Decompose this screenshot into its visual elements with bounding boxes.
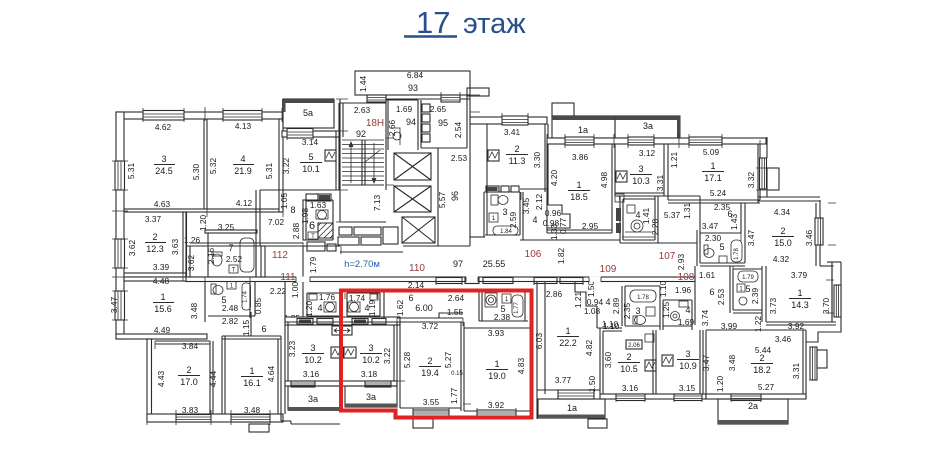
svg-text:3.41: 3.41 bbox=[504, 127, 521, 137]
svg-text:2.89: 2.89 bbox=[611, 298, 621, 315]
svg-text:3.22: 3.22 bbox=[382, 348, 392, 365]
svg-text:3.62: 3.62 bbox=[127, 240, 137, 257]
svg-text:1a: 1a bbox=[578, 125, 588, 135]
svg-text:25.55: 25.55 bbox=[483, 259, 506, 269]
svg-text:3.39: 3.39 bbox=[153, 262, 170, 272]
svg-text:1.20: 1.20 bbox=[715, 376, 725, 393]
svg-text:4.64: 4.64 bbox=[266, 366, 276, 383]
svg-text:2: 2 bbox=[186, 365, 191, 375]
svg-text:4.34: 4.34 bbox=[774, 207, 791, 217]
svg-text:17: 17 bbox=[416, 5, 450, 40]
svg-text:6: 6 bbox=[727, 209, 732, 219]
svg-text:1: 1 bbox=[565, 326, 570, 336]
svg-text:2.22: 2.22 bbox=[270, 286, 287, 296]
svg-text:1.76: 1.76 bbox=[319, 292, 336, 302]
svg-text:3.16: 3.16 bbox=[622, 383, 639, 393]
svg-text:2.53: 2.53 bbox=[716, 289, 726, 306]
svg-text:1: 1 bbox=[576, 180, 581, 190]
svg-text:3.25: 3.25 bbox=[218, 222, 235, 232]
svg-text:6: 6 bbox=[709, 287, 714, 297]
svg-text:5.27: 5.27 bbox=[758, 382, 775, 392]
svg-text:3.47: 3.47 bbox=[746, 230, 756, 247]
svg-text:3.31: 3.31 bbox=[655, 175, 665, 192]
svg-text:4.12: 4.12 bbox=[236, 198, 253, 208]
svg-text:19.4: 19.4 bbox=[421, 368, 439, 378]
svg-text:6: 6 bbox=[261, 324, 266, 334]
svg-text:3: 3 bbox=[635, 306, 640, 316]
svg-text:4.63: 4.63 bbox=[154, 199, 171, 209]
svg-text:3a: 3a bbox=[308, 394, 318, 404]
svg-text:4.43: 4.43 bbox=[156, 371, 166, 388]
svg-text:21.9: 21.9 bbox=[234, 166, 252, 176]
svg-text:3.15: 3.15 bbox=[679, 383, 696, 393]
svg-text:24.5: 24.5 bbox=[155, 166, 173, 176]
svg-text:3.32: 3.32 bbox=[746, 172, 756, 189]
svg-text:2.82: 2.82 bbox=[222, 316, 239, 326]
svg-text:6.84: 6.84 bbox=[407, 70, 424, 80]
svg-text:2.48: 2.48 bbox=[222, 303, 239, 313]
svg-text:5.37: 5.37 bbox=[664, 210, 681, 220]
svg-text:3.63: 3.63 bbox=[170, 239, 180, 256]
svg-text:3a: 3a bbox=[366, 392, 376, 402]
svg-text:3.18: 3.18 bbox=[361, 369, 378, 379]
svg-text:1.10: 1.10 bbox=[658, 281, 668, 298]
svg-text:4: 4 bbox=[532, 215, 537, 225]
svg-text:2: 2 bbox=[514, 144, 519, 154]
svg-text:5.27: 5.27 bbox=[443, 352, 453, 369]
svg-text:1.44: 1.44 bbox=[358, 76, 368, 93]
svg-text:2.86: 2.86 bbox=[546, 289, 563, 299]
svg-text:111: 111 bbox=[280, 272, 296, 283]
svg-text:этаж: этаж bbox=[463, 8, 526, 40]
svg-text:108: 108 bbox=[678, 272, 695, 283]
svg-text:1.74: 1.74 bbox=[349, 293, 366, 303]
svg-text:3: 3 bbox=[502, 207, 507, 217]
svg-text:4.62: 4.62 bbox=[155, 122, 172, 132]
svg-text:1.78: 1.78 bbox=[637, 295, 649, 301]
svg-text:3.92: 3.92 bbox=[788, 321, 805, 331]
svg-text:96: 96 bbox=[450, 191, 460, 201]
svg-text:2.59: 2.59 bbox=[508, 212, 518, 229]
svg-text:1.74: 1.74 bbox=[243, 291, 249, 303]
svg-text:4.83: 4.83 bbox=[516, 358, 526, 375]
svg-text:3.12: 3.12 bbox=[639, 148, 656, 158]
svg-text:5.09: 5.09 bbox=[703, 147, 720, 157]
svg-text:3.60: 3.60 bbox=[603, 352, 613, 369]
svg-text:2.35: 2.35 bbox=[622, 303, 632, 320]
svg-text:2: 2 bbox=[427, 356, 432, 366]
svg-text:2.95: 2.95 bbox=[582, 221, 599, 231]
svg-text:3.77: 3.77 bbox=[555, 375, 572, 385]
svg-text:18.5: 18.5 bbox=[570, 192, 588, 202]
svg-text:5: 5 bbox=[719, 242, 724, 252]
svg-text:3.30: 3.30 bbox=[532, 152, 542, 169]
svg-text:7.13: 7.13 bbox=[372, 195, 382, 212]
svg-text:1.20: 1.20 bbox=[198, 215, 208, 232]
svg-text:22.2: 22.2 bbox=[559, 338, 577, 348]
svg-text:3.70: 3.70 bbox=[821, 298, 831, 315]
svg-text:6: 6 bbox=[408, 293, 413, 303]
svg-text:T: T bbox=[311, 234, 315, 240]
svg-text:110: 110 bbox=[409, 263, 425, 274]
svg-text:2.54: 2.54 bbox=[453, 122, 463, 139]
svg-text:3.84: 3.84 bbox=[182, 341, 199, 351]
svg-text:2.63: 2.63 bbox=[354, 105, 371, 115]
svg-text:11.3: 11.3 bbox=[509, 156, 526, 166]
svg-text:17.0: 17.0 bbox=[180, 377, 198, 387]
svg-text:h=2.70м: h=2.70м bbox=[344, 259, 380, 270]
svg-text:10.5: 10.5 bbox=[620, 364, 638, 374]
svg-text:1.10: 1.10 bbox=[602, 319, 619, 329]
svg-text:112: 112 bbox=[272, 250, 288, 261]
svg-text:2: 2 bbox=[780, 226, 785, 236]
svg-text:0.77: 0.77 bbox=[558, 218, 568, 235]
svg-text:17.1: 17.1 bbox=[704, 173, 722, 183]
svg-text:5.24: 5.24 bbox=[710, 188, 727, 198]
svg-text:1a: 1a bbox=[567, 403, 577, 413]
svg-text:4.13: 4.13 bbox=[235, 121, 252, 131]
svg-text:4: 4 bbox=[240, 154, 245, 164]
svg-text:4.20: 4.20 bbox=[549, 170, 559, 187]
svg-text:1.08: 1.08 bbox=[584, 306, 601, 316]
svg-text:3: 3 bbox=[638, 164, 643, 174]
svg-text:2.12: 2.12 bbox=[534, 194, 544, 211]
svg-text:1.15: 1.15 bbox=[241, 320, 251, 337]
svg-text:3: 3 bbox=[368, 343, 373, 353]
svg-text:3.37: 3.37 bbox=[145, 214, 162, 224]
svg-text:1.61: 1.61 bbox=[699, 270, 716, 280]
svg-text:3.48: 3.48 bbox=[244, 405, 261, 415]
svg-text:1.62: 1.62 bbox=[395, 300, 405, 317]
svg-text:2.38: 2.38 bbox=[494, 312, 511, 322]
svg-text:6.00: 6.00 bbox=[415, 303, 433, 313]
svg-text:1.77: 1.77 bbox=[449, 388, 459, 405]
svg-text:92: 92 bbox=[356, 129, 366, 139]
svg-text:2: 2 bbox=[759, 353, 764, 363]
svg-text:5.31: 5.31 bbox=[264, 163, 274, 180]
svg-text:3.16: 3.16 bbox=[303, 369, 320, 379]
svg-text:2.65: 2.65 bbox=[430, 104, 447, 114]
svg-text:5a: 5a bbox=[303, 108, 313, 118]
svg-text:2.93: 2.93 bbox=[676, 254, 686, 271]
svg-text:3.62: 3.62 bbox=[186, 255, 196, 272]
svg-text:1.77: 1.77 bbox=[514, 302, 520, 314]
svg-text:3.31: 3.31 bbox=[791, 363, 801, 380]
svg-text:1.84: 1.84 bbox=[500, 229, 512, 235]
svg-text:4.98: 4.98 bbox=[599, 172, 609, 189]
svg-text:1.21: 1.21 bbox=[669, 152, 679, 169]
svg-text:3.23: 3.23 bbox=[287, 341, 297, 358]
svg-text:4: 4 bbox=[317, 303, 322, 313]
svg-text:12.3: 12.3 bbox=[146, 244, 164, 254]
svg-text:3: 3 bbox=[310, 343, 315, 353]
svg-text:3.86: 3.86 bbox=[572, 152, 589, 162]
svg-text:8: 8 bbox=[290, 205, 295, 215]
svg-text:5.57: 5.57 bbox=[437, 192, 447, 209]
svg-text:0.96: 0.96 bbox=[545, 208, 562, 218]
svg-text:3.46: 3.46 bbox=[775, 334, 792, 344]
svg-text:7: 7 bbox=[228, 243, 233, 253]
svg-text:5: 5 bbox=[308, 152, 313, 162]
svg-text:1.78: 1.78 bbox=[734, 248, 740, 260]
svg-text:3.48: 3.48 bbox=[727, 355, 737, 372]
svg-text:7.02: 7.02 bbox=[268, 217, 285, 227]
svg-text:4.32: 4.32 bbox=[773, 254, 790, 264]
svg-text:107: 107 bbox=[659, 251, 676, 262]
svg-text:1: 1 bbox=[160, 292, 165, 302]
svg-text:15.6: 15.6 bbox=[154, 304, 172, 314]
svg-text:10.3: 10.3 bbox=[632, 176, 650, 186]
svg-text:16.1: 16.1 bbox=[243, 378, 261, 388]
svg-text:1: 1 bbox=[797, 288, 802, 298]
svg-text:18Н: 18Н bbox=[366, 118, 384, 129]
svg-text:1: 1 bbox=[494, 359, 499, 369]
svg-text:2.64: 2.64 bbox=[448, 293, 465, 303]
svg-text:1.69: 1.69 bbox=[678, 317, 695, 327]
svg-text:109: 109 bbox=[600, 264, 617, 275]
svg-text:19.0: 19.0 bbox=[488, 371, 506, 381]
svg-text:5.28: 5.28 bbox=[402, 352, 412, 369]
svg-text:2.28: 2.28 bbox=[650, 219, 660, 236]
svg-text:3.55: 3.55 bbox=[423, 397, 440, 407]
svg-text:10.1: 10.1 bbox=[302, 164, 320, 174]
svg-text:1.82: 1.82 bbox=[556, 248, 566, 265]
svg-text:1.21: 1.21 bbox=[573, 292, 583, 309]
svg-text:18.2: 18.2 bbox=[753, 365, 771, 375]
svg-text:3.83: 3.83 bbox=[182, 405, 199, 415]
svg-text:2.53: 2.53 bbox=[451, 153, 468, 163]
svg-text:4.48: 4.48 bbox=[153, 276, 170, 286]
svg-text:94: 94 bbox=[406, 117, 416, 127]
svg-text:97: 97 bbox=[453, 259, 463, 269]
svg-text:1.05: 1.05 bbox=[279, 193, 289, 210]
svg-text:1.19: 1.19 bbox=[367, 300, 377, 317]
svg-text:2.06: 2.06 bbox=[628, 343, 640, 349]
svg-text:1.50: 1.50 bbox=[587, 376, 597, 393]
svg-text:1: 1 bbox=[249, 366, 254, 376]
svg-text:2.39: 2.39 bbox=[750, 288, 760, 305]
svg-text:T: T bbox=[232, 268, 236, 274]
svg-text:3.72: 3.72 bbox=[422, 321, 439, 331]
svg-text:4.82: 4.82 bbox=[584, 340, 594, 357]
svg-text:3.22: 3.22 bbox=[281, 158, 291, 175]
svg-text:3.47: 3.47 bbox=[702, 221, 719, 231]
svg-text:3.48: 3.48 bbox=[189, 303, 199, 320]
svg-text:1.55: 1.55 bbox=[447, 307, 464, 317]
svg-text:93: 93 bbox=[408, 83, 418, 93]
svg-text:4.44: 4.44 bbox=[208, 371, 218, 388]
svg-text:2: 2 bbox=[152, 232, 157, 242]
svg-text:1.96: 1.96 bbox=[675, 285, 692, 295]
svg-text:4: 4 bbox=[635, 210, 640, 220]
svg-text:15.0: 15.0 bbox=[774, 238, 792, 248]
svg-text:1.25: 1.25 bbox=[661, 302, 671, 319]
svg-text:5.32: 5.32 bbox=[208, 158, 218, 175]
svg-text:10.2: 10.2 bbox=[362, 355, 380, 365]
svg-text:10.2: 10.2 bbox=[304, 355, 322, 365]
svg-text:1.50: 1.50 bbox=[586, 281, 596, 298]
svg-text:3.99: 3.99 bbox=[721, 321, 738, 331]
svg-text:5.30: 5.30 bbox=[191, 164, 201, 181]
svg-text:95: 95 bbox=[438, 118, 448, 128]
svg-text:3a: 3a bbox=[643, 121, 653, 131]
svg-text:3.45: 3.45 bbox=[521, 198, 531, 215]
svg-text:3: 3 bbox=[685, 349, 690, 359]
svg-text:3.92: 3.92 bbox=[488, 400, 505, 410]
svg-text:1.20: 1.20 bbox=[304, 301, 314, 318]
svg-text:1.69: 1.69 bbox=[396, 104, 413, 114]
svg-text:4: 4 bbox=[605, 297, 610, 307]
svg-text:0.85: 0.85 bbox=[253, 298, 263, 315]
svg-text:6.03: 6.03 bbox=[534, 333, 544, 350]
svg-text:3.47: 3.47 bbox=[109, 297, 119, 314]
svg-text:10.9: 10.9 bbox=[679, 361, 697, 371]
svg-text:0.15: 0.15 bbox=[451, 371, 463, 377]
svg-text:3.93: 3.93 bbox=[488, 328, 505, 338]
svg-text:106: 106 bbox=[525, 249, 542, 260]
svg-text:1: 1 bbox=[710, 161, 715, 171]
svg-text:3.14: 3.14 bbox=[302, 137, 319, 147]
svg-text:1.79: 1.79 bbox=[308, 257, 318, 274]
svg-text:1.98: 1.98 bbox=[300, 208, 310, 225]
svg-text:1.31: 1.31 bbox=[682, 203, 692, 220]
svg-text:3.79: 3.79 bbox=[791, 270, 808, 280]
svg-text:3.74: 3.74 bbox=[700, 310, 710, 327]
svg-text:3.73: 3.73 bbox=[768, 298, 778, 315]
svg-text:5.31: 5.31 bbox=[126, 163, 136, 180]
svg-text:14.3: 14.3 bbox=[791, 300, 809, 310]
svg-text:2: 2 bbox=[626, 352, 631, 362]
svg-text:2a: 2a bbox=[748, 401, 758, 411]
svg-text:3.46: 3.46 bbox=[804, 230, 814, 247]
svg-text:1.00: 1.00 bbox=[290, 282, 300, 299]
svg-text:3: 3 bbox=[161, 154, 166, 164]
svg-text:1.79: 1.79 bbox=[742, 275, 754, 281]
